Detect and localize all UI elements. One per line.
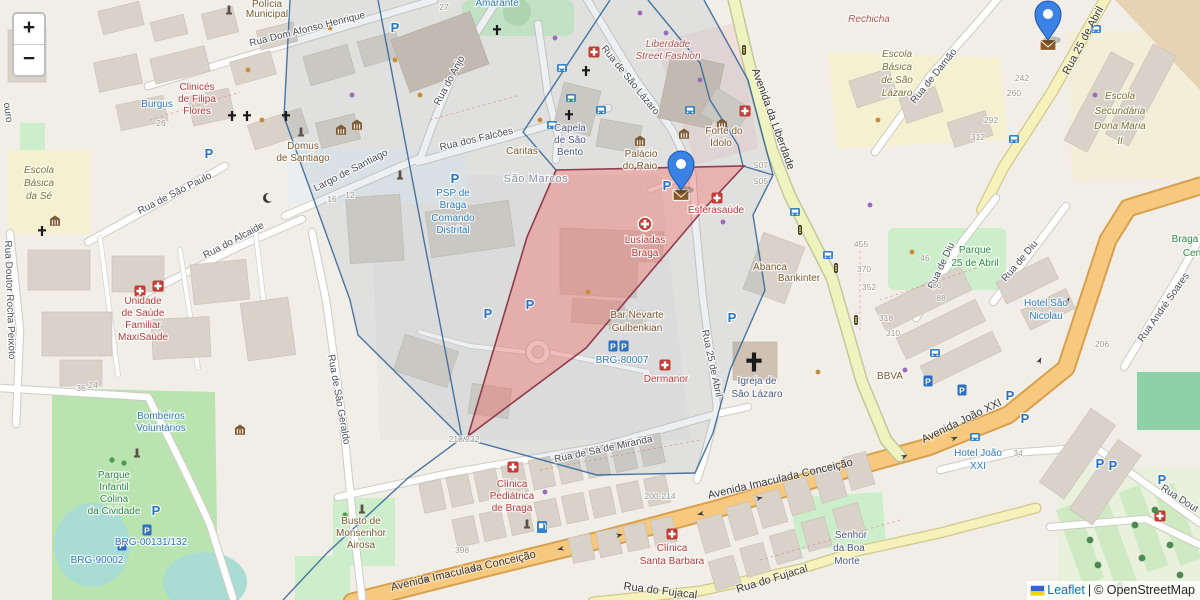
bus-icon — [970, 433, 980, 441]
arrow-icon — [900, 453, 908, 460]
map-label: Parque — [959, 245, 992, 256]
map-label: Abanca — [753, 262, 787, 273]
map-label: Forte do — [705, 126, 743, 137]
map-label: 25 de Abril — [951, 258, 998, 269]
zoom-in-button[interactable]: + — [14, 14, 44, 45]
map-label: 216/232 — [449, 434, 480, 444]
map-label: Infantil — [99, 482, 128, 493]
map-label: São Lázaro — [731, 389, 783, 400]
play-icon — [121, 460, 126, 465]
map-label: Dermanor — [644, 374, 689, 385]
map-label: BRG-80007 — [596, 355, 649, 366]
arrow-icon — [1036, 356, 1043, 364]
dotO-icon — [910, 250, 915, 255]
pbox-icon: P — [924, 376, 933, 387]
dotP-icon — [903, 368, 908, 373]
hospital-icon — [508, 462, 519, 473]
svg-text:P: P — [925, 376, 931, 386]
dotO-icon — [876, 118, 881, 123]
map-label: Cen — [1183, 248, 1200, 259]
map-label: Bar Nevarte — [610, 310, 664, 321]
osm-attribution-link[interactable]: © OpenStreetMap — [1094, 583, 1195, 597]
map-label: 260 — [1007, 88, 1021, 98]
map-label: Rua Doutor Rocha Peixoto — [2, 240, 17, 360]
map-label: P — [205, 146, 214, 161]
map-label: Municipal — [246, 9, 288, 20]
cross-icon — [746, 353, 761, 372]
map-label: 242 — [1015, 73, 1029, 83]
map-label: Clínica — [497, 479, 528, 490]
bus-icon — [930, 349, 940, 357]
dotO-icon — [586, 290, 591, 295]
map-label: Avenida Imaculada Conceição — [390, 549, 537, 594]
map-label: Parque — [98, 470, 131, 481]
bus-icon — [1009, 135, 1019, 143]
statue-icon — [134, 449, 140, 458]
tl-icon — [798, 225, 802, 235]
map-label: do Raio — [623, 161, 658, 172]
map-label: Ídolo — [710, 136, 732, 149]
map-label: Bankinter — [778, 273, 821, 284]
map-label: P — [1021, 411, 1030, 426]
pbox-icon: P — [958, 385, 967, 396]
map-label: BRG-00131/132 — [115, 537, 188, 548]
statue-icon — [359, 505, 365, 514]
map-label: Escola — [24, 165, 54, 176]
map-label: Braga — [440, 200, 467, 211]
map-label: 34 — [1013, 448, 1023, 458]
svg-text:P: P — [144, 525, 150, 535]
map-label: 318 — [879, 313, 893, 323]
map-label: 505 — [754, 176, 768, 186]
map-label: Monsenhor — [336, 528, 387, 539]
arrow-icon — [557, 546, 565, 552]
map-label: P — [1158, 472, 1167, 487]
map-label: Hotel João — [954, 448, 1002, 459]
tree-icon — [1139, 555, 1146, 562]
hospital-icon — [712, 193, 723, 204]
map-label: 352 — [862, 282, 876, 292]
map-label: Capela — [554, 123, 586, 134]
map-label: Rua Dout — [1159, 483, 1200, 515]
map-label: da Boa — [833, 543, 865, 554]
museum-icon — [235, 425, 246, 435]
play-icon — [109, 457, 114, 462]
map-label: de Braga — [492, 503, 533, 514]
hospital-icon — [667, 529, 678, 540]
dotO-icon — [418, 93, 423, 98]
map-label: Morte — [834, 556, 860, 567]
tl-icon — [834, 263, 838, 273]
map-label: Distrital — [436, 225, 469, 236]
bus-icon — [566, 94, 576, 102]
map-label: 26 — [156, 118, 166, 128]
bus-icon — [823, 251, 833, 259]
map-label: P — [663, 178, 672, 193]
map-label: 80 — [932, 280, 942, 290]
map-label: Palácio — [625, 149, 658, 160]
map-label: Escola — [882, 49, 912, 60]
map-label: Rua de Diu — [1000, 239, 1041, 284]
map-label: P — [391, 20, 400, 35]
map-label: Bombeiros — [137, 411, 185, 422]
arrow-icon — [616, 532, 624, 538]
map-label: P — [451, 171, 460, 186]
map-label: Liberdade — [646, 39, 691, 50]
map-label: Lusíadas — [625, 235, 666, 246]
map-label: Secundária — [1095, 106, 1146, 117]
dotP-icon — [868, 203, 873, 208]
bus-icon — [596, 106, 606, 114]
fuel-icon — [537, 521, 547, 533]
hospital-icon — [153, 281, 164, 292]
dotO-icon — [393, 58, 398, 63]
map-label: Clínica — [657, 543, 688, 554]
map-label: 292 — [984, 115, 998, 125]
crescent-icon — [263, 193, 275, 203]
map-label: 24 — [88, 380, 98, 390]
map-label: 16 — [327, 194, 337, 204]
map-label: Hotel São — [1024, 298, 1068, 309]
map-label: 46 — [920, 253, 930, 263]
svg-text:P: P — [610, 341, 616, 351]
map-label: Avenida João XXI — [920, 397, 1004, 446]
map-label: 370 — [857, 264, 871, 274]
map-label: Colina — [100, 494, 129, 505]
map-label: de São — [881, 75, 913, 86]
map-label: de Filipa — [178, 94, 216, 105]
dotO-icon — [246, 68, 251, 73]
map-label: Nicolau — [1029, 311, 1062, 322]
map-label: P — [526, 297, 535, 312]
dotP-icon — [350, 93, 355, 98]
pbox-icon: P — [609, 341, 618, 352]
map-label: Rua de São Paulo — [136, 170, 214, 217]
attribution-separator: | — [1088, 583, 1091, 597]
map-label: 206 — [1095, 339, 1109, 349]
map-label: 455 — [854, 239, 868, 249]
ukraine-flag-icon — [1031, 586, 1044, 595]
map-label: 312 — [971, 132, 985, 142]
map-label: Senhor — [835, 530, 868, 541]
map-label: São Marcos — [504, 173, 569, 185]
leaflet-link[interactable]: Leaflet — [1047, 583, 1085, 597]
map-label: Avenida Imaculada Conceição — [707, 457, 854, 502]
dotP-icon — [721, 220, 726, 225]
map-label: Flores — [183, 106, 211, 117]
map-label: Burgus — [141, 99, 173, 110]
map-label: Esferasaúde — [688, 205, 745, 216]
hospital-icon — [740, 106, 751, 117]
map-label: Domus — [287, 141, 319, 152]
map-label: P — [1096, 456, 1105, 471]
zoom-control: + − — [12, 12, 46, 77]
map-label: PSP de — [436, 188, 470, 199]
map-label: 398 — [455, 545, 469, 555]
map-label: Rua de Damão — [909, 46, 960, 106]
tree-icon — [1087, 537, 1094, 544]
map-label: Comando — [431, 213, 475, 224]
dotO-icon — [260, 118, 265, 123]
map-label: de Saúde — [122, 308, 165, 319]
map-label: Rua do Fujacal — [735, 563, 809, 596]
statue-icon — [226, 6, 232, 15]
map-label: Rua do Alcaide — [202, 220, 267, 261]
dotP-icon — [638, 11, 643, 16]
map-label: de São — [554, 135, 586, 146]
tree-icon — [1152, 507, 1159, 514]
arrow-icon — [697, 511, 705, 517]
tl-icon — [742, 45, 746, 55]
map-label: 310 — [886, 328, 900, 338]
map-label: Dona Maria — [1094, 121, 1146, 132]
map-label: P — [1006, 388, 1015, 403]
map-label: Igreja de — [738, 376, 777, 387]
map-label: II — [1117, 136, 1123, 147]
map-label: da Sé — [26, 191, 53, 202]
map-label: Airosa — [347, 540, 376, 551]
dotO-icon — [538, 118, 543, 123]
map-label: Rua André Soares — [1136, 271, 1192, 344]
map-label: 27 — [439, 2, 449, 12]
map-marker[interactable] — [1035, 1, 1061, 51]
dotP-icon — [553, 36, 558, 41]
cross-icon — [228, 111, 236, 121]
tree-icon — [1177, 572, 1184, 579]
svg-text:P: P — [621, 341, 627, 351]
map-label: Bento — [557, 147, 584, 158]
map-label: XXI — [970, 461, 986, 472]
map-label: Street Fashion — [635, 51, 700, 62]
attribution: Leaflet|© OpenStreetMap — [1027, 581, 1200, 600]
map-label: Escola — [1105, 91, 1135, 102]
map-label: 12 — [345, 190, 355, 200]
bus-icon — [557, 64, 567, 72]
map-label: P — [728, 310, 737, 325]
map-label: Braga — [632, 248, 659, 259]
map-label: Familiar — [125, 320, 161, 331]
map-label: Rua de São Geraldo — [325, 354, 352, 446]
map-label: Voluntários — [136, 423, 185, 434]
map-label: Básica — [882, 62, 912, 73]
map-label: Caritas — [506, 146, 538, 157]
arrow-icon — [756, 495, 764, 501]
museum-icon — [50, 216, 61, 226]
map-label: Gulbenkian — [612, 323, 663, 334]
map-label: P — [152, 503, 161, 518]
dotO-icon — [816, 370, 821, 375]
bus-icon — [790, 208, 800, 216]
map-label: ouro — [1, 102, 15, 124]
map-label: 88 — [936, 293, 946, 303]
svg-text:P: P — [959, 385, 965, 395]
arrow-icon — [950, 435, 958, 442]
map-label: Clinicés — [179, 82, 214, 93]
map-label: Amarante — [475, 0, 519, 9]
map-label: P — [1109, 458, 1118, 473]
cross-icon — [38, 226, 46, 236]
map-label: Braga — [1172, 234, 1199, 245]
map-label: de Santiago — [276, 153, 330, 164]
pbox-icon: P — [620, 341, 629, 352]
dotP-icon — [543, 490, 548, 495]
map-label: BRG-90002 — [71, 555, 124, 566]
map-label: Rechicha — [848, 14, 890, 25]
dotP-icon — [664, 31, 669, 36]
tree-icon — [1095, 562, 1102, 569]
bus-icon — [685, 106, 695, 114]
map-label: Unidade — [124, 296, 162, 307]
map-label: Busto de — [341, 516, 381, 527]
pbox-icon: P — [143, 525, 152, 536]
tree-icon — [1132, 522, 1139, 529]
map-label: MaxiSaúde — [118, 332, 168, 343]
tl-icon — [854, 315, 858, 325]
map-label: da Cividade — [88, 506, 141, 517]
map-label: 36 — [76, 383, 86, 393]
hospital-icon — [660, 360, 671, 371]
hospital-icon — [135, 286, 146, 297]
dotP-icon — [698, 78, 703, 83]
map-label: Lázaro — [882, 88, 913, 99]
map-label: Básica — [24, 178, 54, 189]
map-label: 200-214 — [644, 491, 675, 501]
map-label: BBVA — [877, 371, 903, 382]
map-label: Santa Barbara — [640, 556, 705, 567]
statue-icon — [524, 520, 530, 529]
zoom-out-button[interactable]: − — [14, 45, 44, 75]
map-label: 507 — [754, 160, 768, 170]
hospital-icon — [589, 47, 600, 58]
dotP-icon — [1093, 93, 1098, 98]
hospcirc-icon — [638, 217, 652, 231]
map-label: Pediátrica — [490, 491, 535, 502]
map-canvas[interactable]: PPPPPPRua Dom Afonso HenriqueRua do Anjo… — [0, 0, 1200, 600]
map-label: P — [484, 306, 493, 321]
tree-icon — [1167, 542, 1174, 549]
overlay-layer: PPPPPPRua Dom Afonso HenriqueRua do Anjo… — [0, 0, 1200, 600]
map-label: Rua 25 de Abril — [1060, 5, 1106, 77]
map-label: Rua do Fujacal — [623, 581, 698, 600]
cross-icon — [243, 111, 251, 121]
